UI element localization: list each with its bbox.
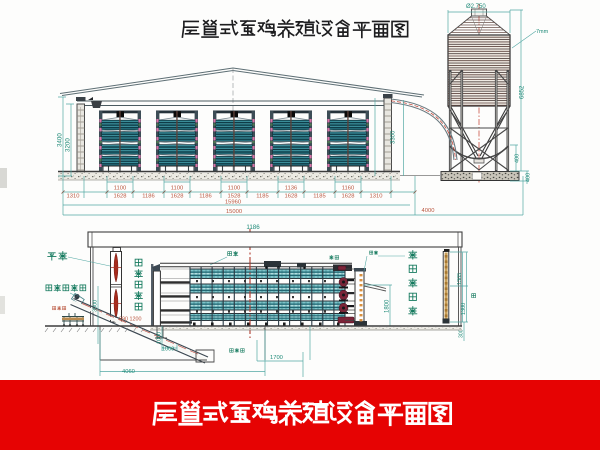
svg-text:1186: 1186 (246, 224, 260, 231)
svg-text:1000: 1000 (162, 347, 174, 353)
svg-text:1700: 1700 (270, 355, 283, 361)
svg-text:15000: 15000 (226, 209, 242, 215)
svg-text:1100: 1100 (171, 186, 183, 192)
svg-text:3200: 3200 (65, 138, 72, 152)
svg-text:1628: 1628 (171, 194, 184, 200)
svg-text:4000: 4000 (422, 208, 435, 214)
svg-text:1136: 1136 (285, 186, 297, 192)
svg-text:1186: 1186 (142, 194, 154, 200)
svg-text:15960: 15960 (225, 200, 241, 206)
svg-text:4060: 4060 (122, 369, 135, 375)
svg-text:3300: 3300 (391, 130, 397, 144)
svg-text:1800: 1800 (385, 299, 391, 313)
svg-text:1305: 1305 (457, 273, 463, 285)
svg-text:1100: 1100 (228, 186, 240, 192)
svg-text:1628: 1628 (285, 194, 298, 200)
svg-text:400: 400 (526, 173, 532, 182)
svg-text:300: 300 (459, 329, 465, 338)
svg-text:1160: 1160 (342, 186, 354, 192)
svg-text:1185: 1185 (313, 194, 325, 200)
svg-text:7mm: 7mm (536, 29, 549, 35)
svg-text:400: 400 (515, 154, 521, 163)
svg-text:890 1200: 890 1200 (119, 317, 141, 323)
svg-text:6852: 6852 (520, 85, 526, 99)
svg-text:3000: 3000 (93, 300, 99, 312)
svg-text:Ø2.750: Ø2.750 (466, 4, 486, 10)
svg-text:1100: 1100 (114, 186, 126, 192)
svg-text:1628: 1628 (114, 194, 127, 200)
svg-text:1186: 1186 (199, 194, 211, 200)
svg-text:1185: 1185 (256, 194, 268, 200)
svg-text:3400: 3400 (57, 133, 64, 147)
svg-text:1000: 1000 (157, 332, 163, 344)
svg-text:1628: 1628 (342, 194, 355, 200)
svg-text:1310: 1310 (67, 194, 80, 200)
svg-text:1300: 1300 (461, 303, 467, 315)
svg-text:1310: 1310 (370, 194, 383, 200)
